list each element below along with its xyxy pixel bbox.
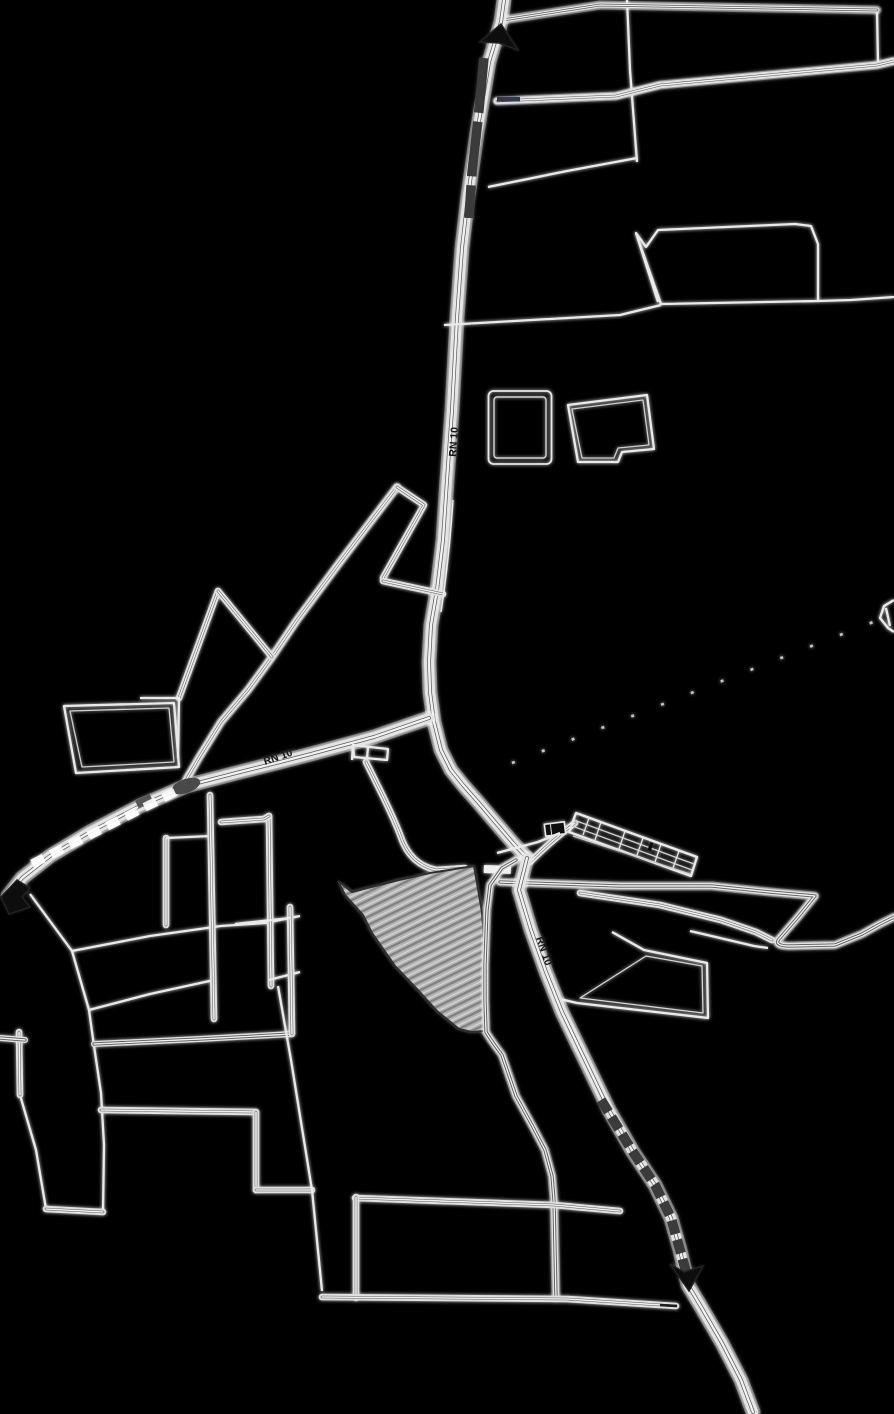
- svg-text:RN 10: RN 10: [447, 427, 461, 458]
